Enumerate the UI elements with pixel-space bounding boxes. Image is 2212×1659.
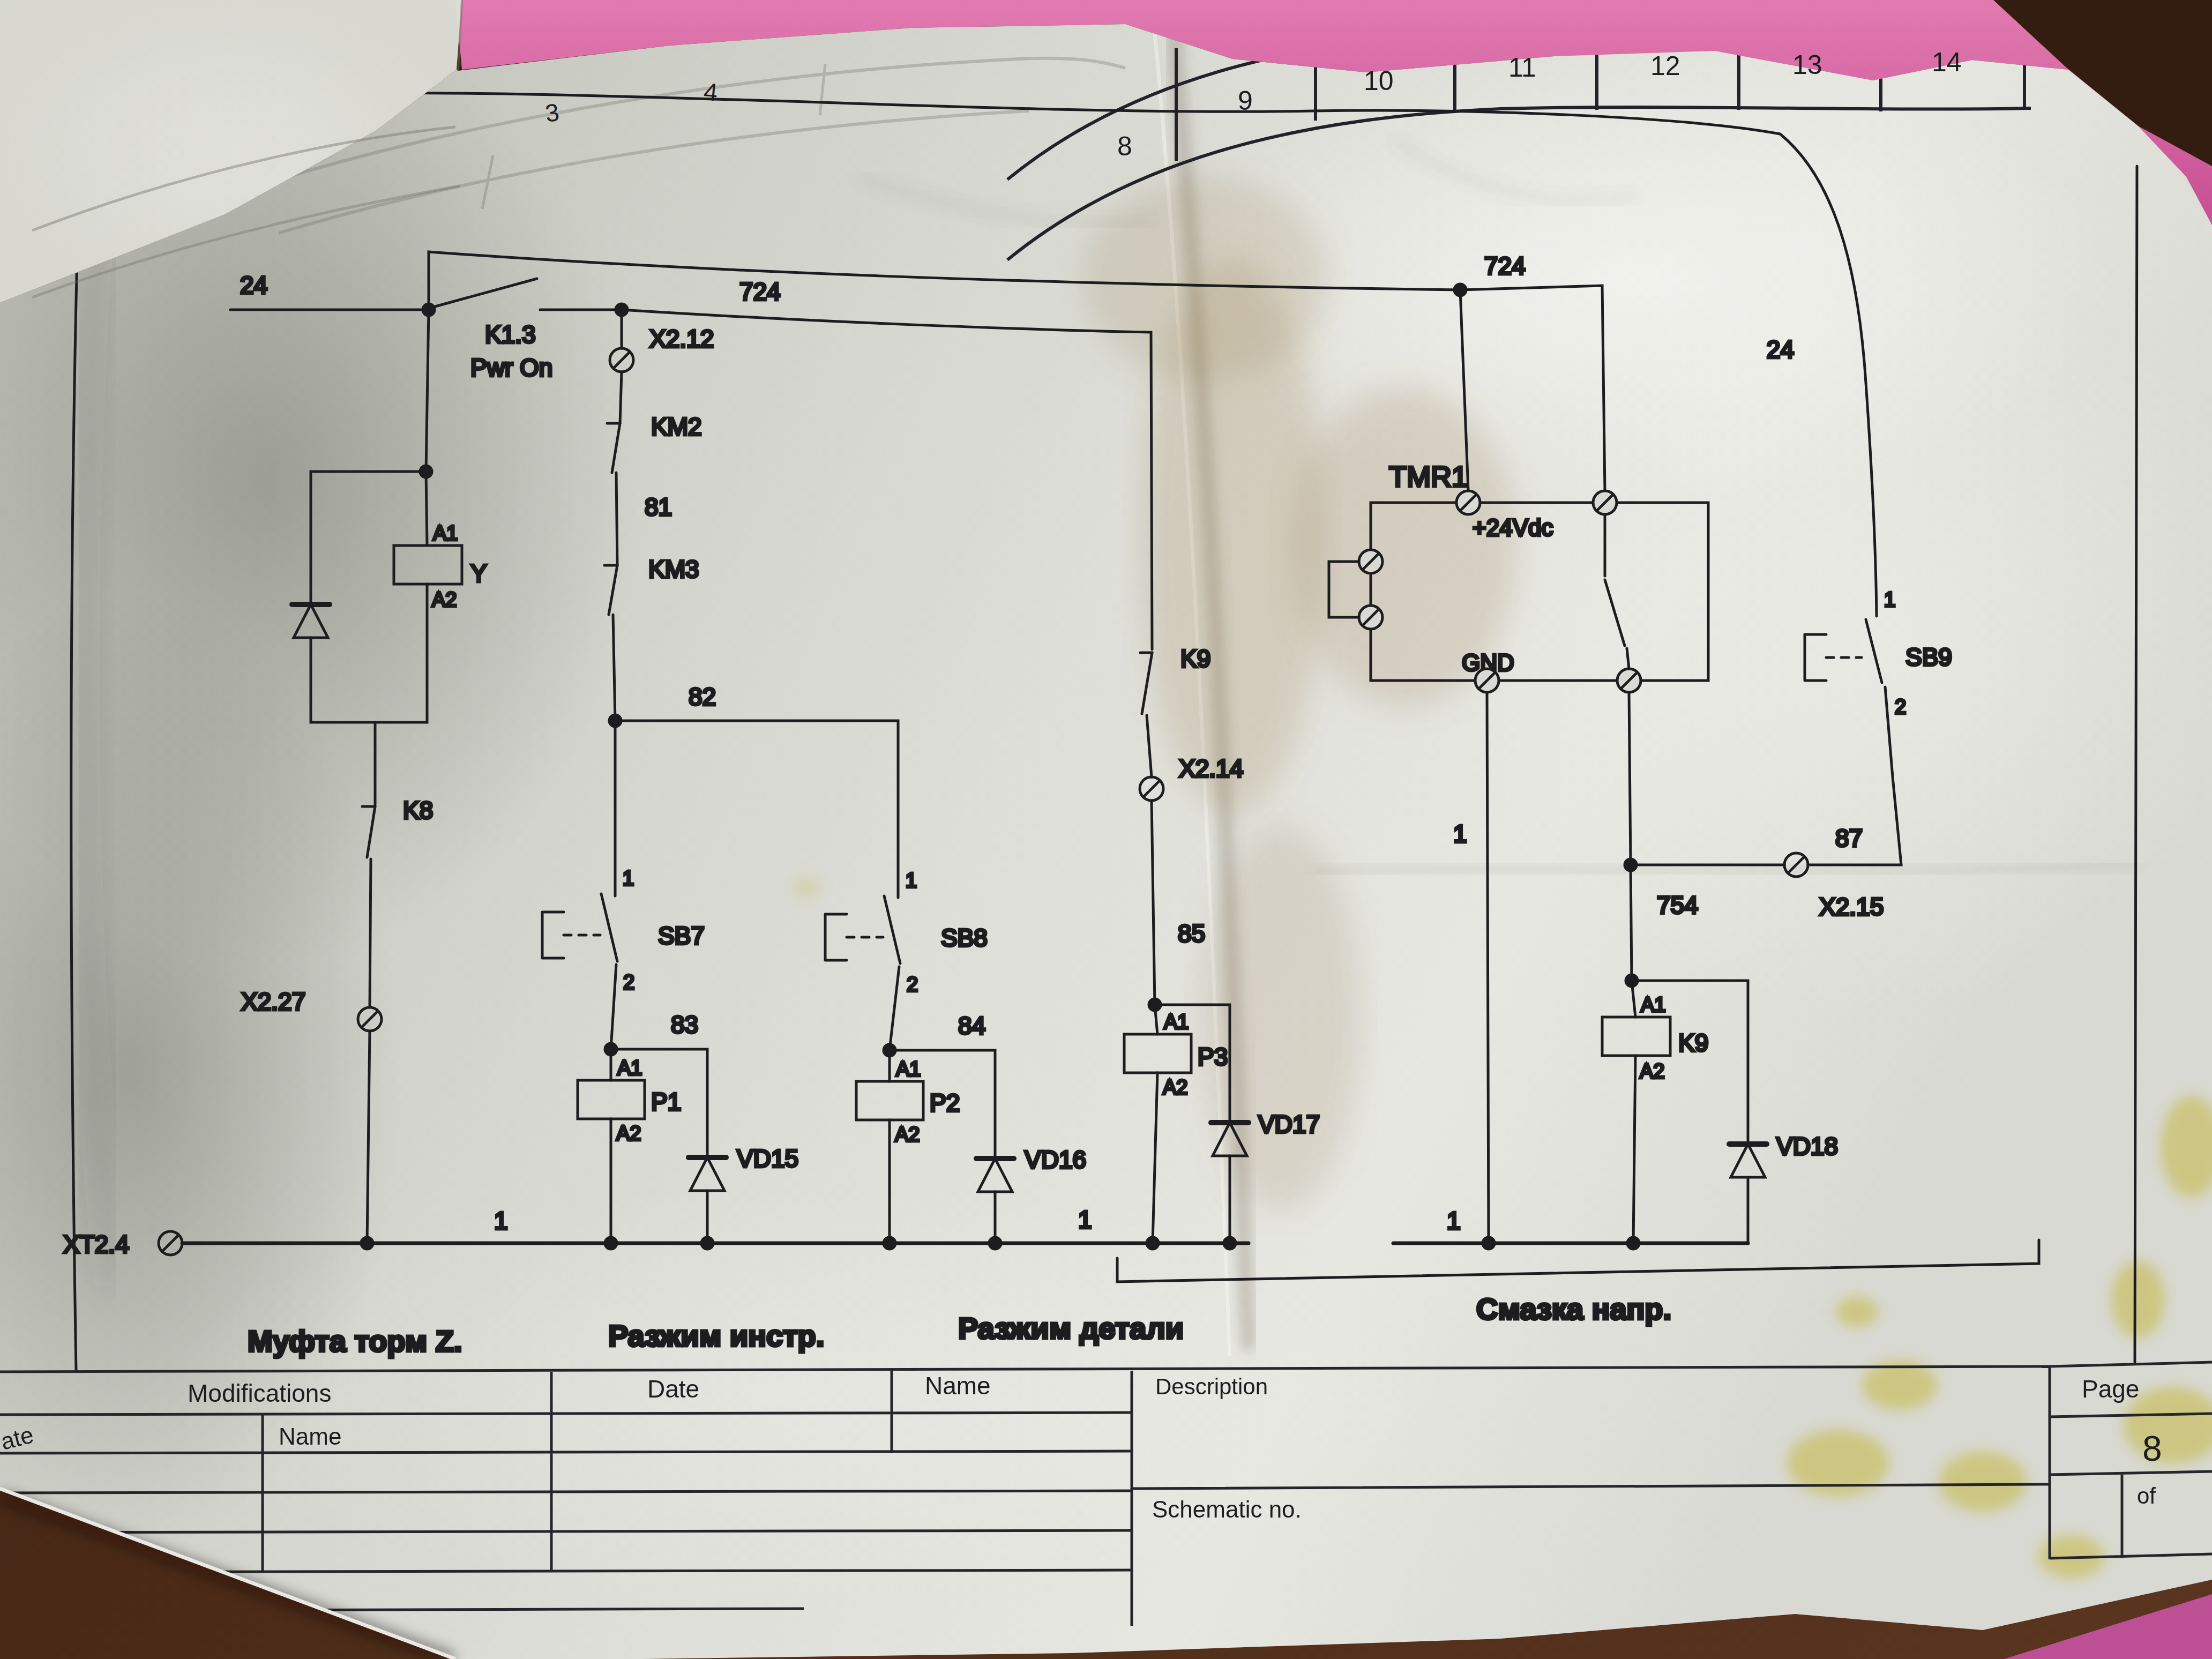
label-k8: K8 [403, 796, 433, 824]
of-label: of [2137, 1483, 2156, 1508]
pin-p2-a1: A1 [896, 1058, 921, 1080]
titleblock-description: Description [1155, 1374, 1268, 1399]
rail-dot-vd17 [1224, 1237, 1236, 1249]
wire-label-724-right: 724 [1484, 252, 1526, 280]
ruler-cell-11: 11 [1508, 53, 1536, 83]
pin-p3-a1: A1 [1164, 1011, 1189, 1033]
titleblock-name-row: Name [279, 1423, 341, 1449]
photo-of-schematic: 8 9 10 11 12 13 14 3 4 24 24 724 K1.3 Pw… [0, 0, 2212, 1659]
ruler-cell-12: 12 [1650, 51, 1680, 81]
rail-dot-gnd [1483, 1237, 1494, 1249]
pin-y-a2: A2 [432, 588, 457, 611]
wire-label-81: 81 [645, 493, 672, 521]
pin-k9-a2: A2 [1640, 1060, 1664, 1082]
label-sb8: SB8 [941, 924, 988, 952]
page-label: Page [2082, 1375, 2139, 1403]
label-pwr-on: Pwr On [470, 354, 552, 382]
caption-part: Разжим детали [958, 1311, 1184, 1345]
rail-dot-p1 [605, 1237, 617, 1249]
label-k9-contact: K9 [1180, 645, 1210, 672]
wire-label-724-left: 724 [739, 278, 781, 305]
tmr1-terminal-bottom-right [1617, 669, 1641, 692]
pin-p1-a2: A2 [616, 1122, 641, 1145]
wire-label-85: 85 [1178, 920, 1205, 947]
ruler-cell-13: 13 [1792, 50, 1822, 80]
wire-y-a1 [426, 472, 427, 545]
wire-gnd-down [1487, 692, 1489, 1243]
wire-label-24-left: 24 [240, 271, 267, 299]
label-xt24: XT2.4 [63, 1230, 129, 1258]
ruler-cell-10: 10 [1364, 66, 1394, 96]
rail-dot-vd16 [989, 1237, 1001, 1249]
wire-x212-down [620, 372, 622, 423]
label-x215: X2.15 [1819, 893, 1884, 921]
pin-p2-a2: A2 [895, 1123, 920, 1146]
scene: 8 9 10 11 12 13 14 3 4 24 24 724 K1.3 Pw… [0, 0, 2212, 1659]
pin-sb7-1: 1 [623, 867, 634, 890]
tmr1-terminal-bottom-left [1475, 669, 1499, 692]
label-vd17: VD17 [1258, 1110, 1320, 1138]
rail-dot-k9 [1627, 1237, 1639, 1249]
titleblock-name-col: Name [925, 1372, 991, 1400]
rail-dot-p3 [1147, 1237, 1159, 1249]
label-y: Y [470, 559, 487, 587]
titleblock-modifications: Modifications [188, 1379, 331, 1407]
tmr1-terminal-top-left [1456, 491, 1480, 514]
label-km2: KM2 [651, 413, 702, 440]
tmr1-terminal-left-2 [1359, 606, 1382, 629]
rail-label-1b: 1 [1078, 1206, 1092, 1234]
titleblock-schematic-no: Schematic no. [1152, 1496, 1302, 1522]
pin-sb9-1: 1 [1884, 588, 1895, 611]
pin-sb8-1: 1 [906, 869, 917, 892]
label-vd18: VD18 [1776, 1132, 1838, 1160]
rail-dot-p2 [884, 1237, 895, 1249]
label-vd16: VD16 [1025, 1146, 1086, 1174]
label-p3: P3 [1198, 1043, 1228, 1071]
rail-label-1a: 1 [494, 1207, 508, 1235]
ruler-cell-14: 14 [1932, 47, 1962, 77]
wire-label-87: 87 [1835, 824, 1863, 852]
wire-754-lower [1631, 865, 1632, 981]
tmr1-terminal-left-1 [1359, 550, 1382, 573]
pin-sb9-2: 2 [1895, 696, 1906, 718]
label-x214: X2.14 [1179, 754, 1243, 782]
label-plus24vdc: +24Vdc [1473, 514, 1553, 541]
rail-dot-vd15 [701, 1237, 713, 1249]
label-k9-coil: K9 [1678, 1029, 1708, 1057]
rail-dot-k8 [361, 1237, 373, 1249]
label-sb7: SB7 [658, 922, 705, 950]
label-x227: X2.27 [241, 988, 305, 1015]
wire-label-84: 84 [958, 1012, 985, 1040]
caption-lube: Смазка напр. [1476, 1292, 1671, 1326]
label-tmr1: TMR1 [1389, 460, 1468, 492]
label-p2: P2 [930, 1089, 960, 1117]
ruler-cell-8: 8 [1117, 131, 1132, 161]
label-vd15: VD15 [737, 1145, 798, 1172]
wire-label-754: 754 [1657, 891, 1698, 919]
label-k13: K1.3 [485, 320, 536, 348]
page-number: 8 [2142, 1429, 2162, 1468]
pin-p1-a1: A1 [617, 1057, 642, 1079]
pin-k9-a1: A1 [1641, 993, 1665, 1016]
pin-sb8-2: 2 [907, 973, 918, 996]
label-p1: P1 [651, 1088, 681, 1116]
pin-y-a1: A1 [433, 522, 458, 544]
wire-label-1-gnd: 1 [1453, 820, 1467, 848]
rail-label-1c: 1 [1447, 1207, 1461, 1235]
label-sb9: SB9 [1905, 643, 1952, 671]
wire-label-83: 83 [671, 1011, 698, 1038]
label-x212: X2.12 [649, 325, 714, 353]
pin-p3-a2: A2 [1163, 1076, 1187, 1098]
caption-tool: Разжим инстр. [608, 1319, 824, 1352]
caption-clutch: Муфта торм Z. [248, 1324, 462, 1358]
wire-754-upper [1629, 692, 1631, 865]
pin-sb7-2: 2 [623, 971, 634, 993]
tmr1-terminal-top-right [1593, 491, 1617, 514]
label-km3: KM3 [648, 555, 699, 583]
wire-label-24-right: 24 [1767, 335, 1794, 363]
wire-label-82: 82 [689, 683, 716, 711]
faint-4: 4 [703, 77, 719, 106]
titleblock-date: Date [647, 1375, 699, 1403]
